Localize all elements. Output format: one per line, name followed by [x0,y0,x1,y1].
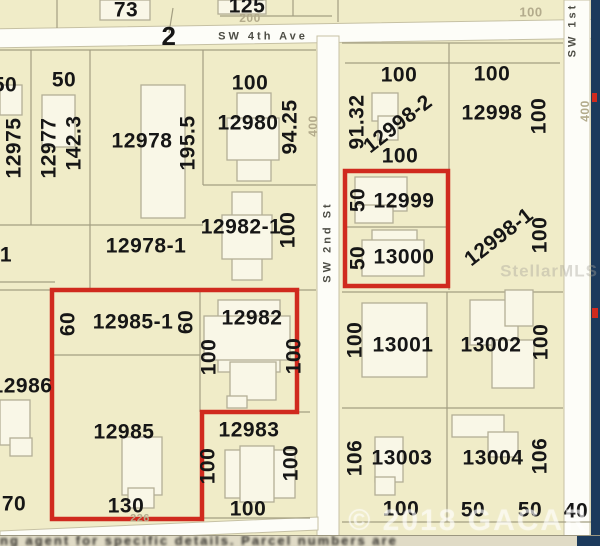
map-label-400: 400 [307,115,319,137]
map-label-13003: 13003 [372,448,433,469]
map-label-106: 106 [345,440,366,477]
map-label-12986: 12986 [0,376,52,397]
map-label-13001: 13001 [373,335,434,356]
map-label-12975: 12975 [4,118,25,179]
map-label-12999: 12999 [374,191,435,212]
map-label-100: 100 [529,98,550,135]
street-name-sw-4th-ave: SW 4th Ave [218,32,308,43]
map-label-226: 226 [130,514,150,525]
map-label-400: 400 [579,100,591,122]
parcel-map: 731252002SW 4th Ave100SW 1st505012975129… [0,0,600,546]
map-label-195-5: 195.5 [178,115,199,170]
map-label-60: 60 [176,310,197,334]
map-label-13002: 13002 [461,335,522,356]
map-label-100: 100 [519,6,542,19]
map-label-12982: 12982 [222,308,283,329]
map-label-50: 50 [0,75,17,96]
map-label-12982-1: 12982-1 [201,217,282,238]
map-label-60: 60 [58,312,79,336]
map-label-12983: 12983 [219,420,280,441]
map-label-100: 100 [531,324,552,361]
footer-disclaimer-text: ng agent for specific details. Parcel nu… [0,535,600,546]
footer-corner-navy [577,536,600,546]
map-label-12977: 12977 [39,118,60,179]
map-label-100: 100 [232,73,269,94]
map-label-12980: 12980 [218,113,279,134]
map-label-94-25: 94.25 [280,99,301,154]
map-label-12998-1: 12998-1 [461,204,537,270]
map-label-50: 50 [348,188,369,212]
map-label-100: 100 [198,448,219,485]
map-label-12998: 12998 [462,103,523,124]
map-label-100: 100 [345,322,366,359]
map-label-13000: 13000 [374,247,435,268]
map-label-100: 100 [199,339,220,376]
footer-disclaimer-strip: ng agent for specific details. Parcel nu… [0,535,600,546]
street-name-sw-1st: SW 1st [568,3,579,58]
map-label-100: 100 [381,65,418,86]
map-label-12978-1: 12978-1 [106,236,187,257]
map-label-1: 1 [0,245,12,266]
map-label-100: 100 [278,212,299,249]
map-label-50: 50 [348,246,369,270]
map-label-100: 100 [530,217,551,254]
map-labels: 731252002SW 4th Ave100SW 1st505012975129… [0,0,600,546]
map-label-12985: 12985 [94,422,155,443]
watermark-stellarmls: StellarMLS [500,263,598,280]
watermark-copyright: © 2018 GACAR [348,506,588,536]
map-label-73: 73 [114,0,138,21]
map-label-106: 106 [530,438,551,475]
map-label-100: 100 [281,445,302,482]
map-label-142-3: 142.3 [64,115,85,170]
map-label-100: 100 [284,338,305,375]
map-label-200: 200 [239,12,261,24]
map-label-100: 100 [382,146,419,167]
map-label-13004: 13004 [463,448,524,469]
map-label-50: 50 [52,70,76,91]
map-label-100: 100 [230,499,267,520]
map-label-70: 70 [2,494,26,515]
map-label-100: 100 [474,64,511,85]
map-label-12985-1: 12985-1 [93,312,174,333]
map-label-2: 2 [162,23,177,49]
map-label-12978: 12978 [112,131,173,152]
street-name-sw-2nd-st: SW 2nd St [323,201,334,282]
